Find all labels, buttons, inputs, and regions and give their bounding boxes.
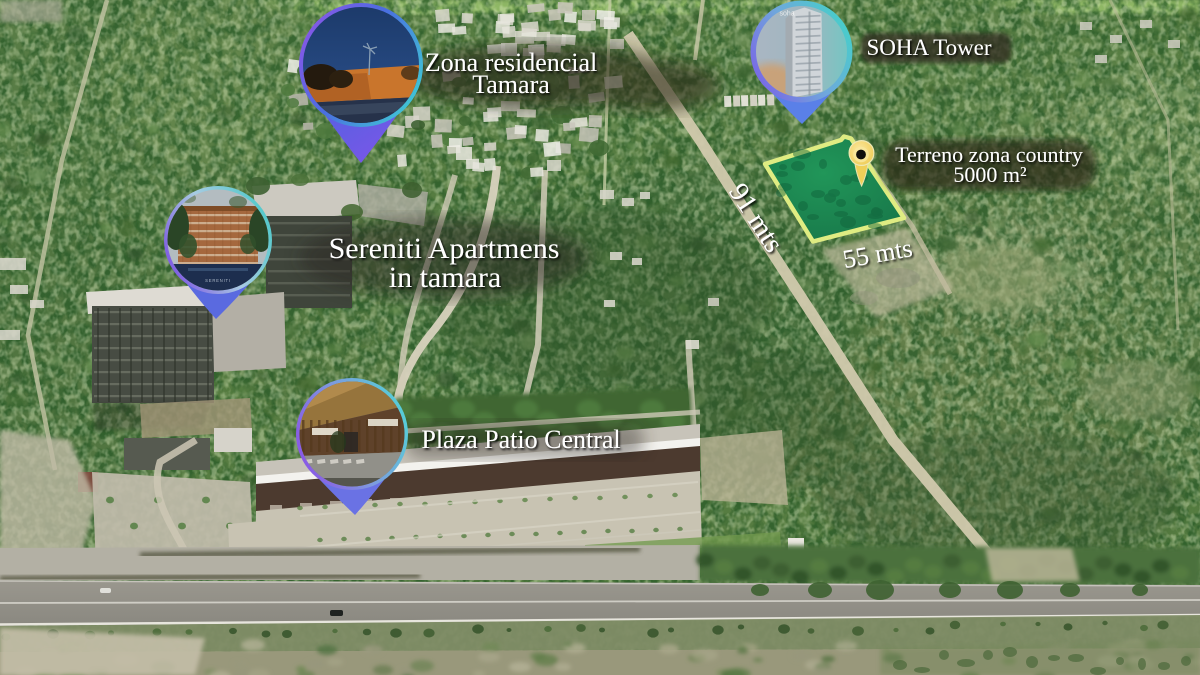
svg-text:Tamara: Tamara: [472, 70, 550, 99]
svg-text:SERENITI: SERENITI: [205, 278, 231, 283]
svg-text:soha: soha: [780, 11, 795, 18]
svg-text:5000 m²: 5000 m²: [953, 162, 1027, 187]
svg-text:Plaza Patio Central: Plaza Patio Central: [421, 425, 620, 454]
svg-text:SOHA Tower: SOHA Tower: [866, 35, 991, 60]
svg-text:in tamara: in tamara: [389, 261, 501, 294]
